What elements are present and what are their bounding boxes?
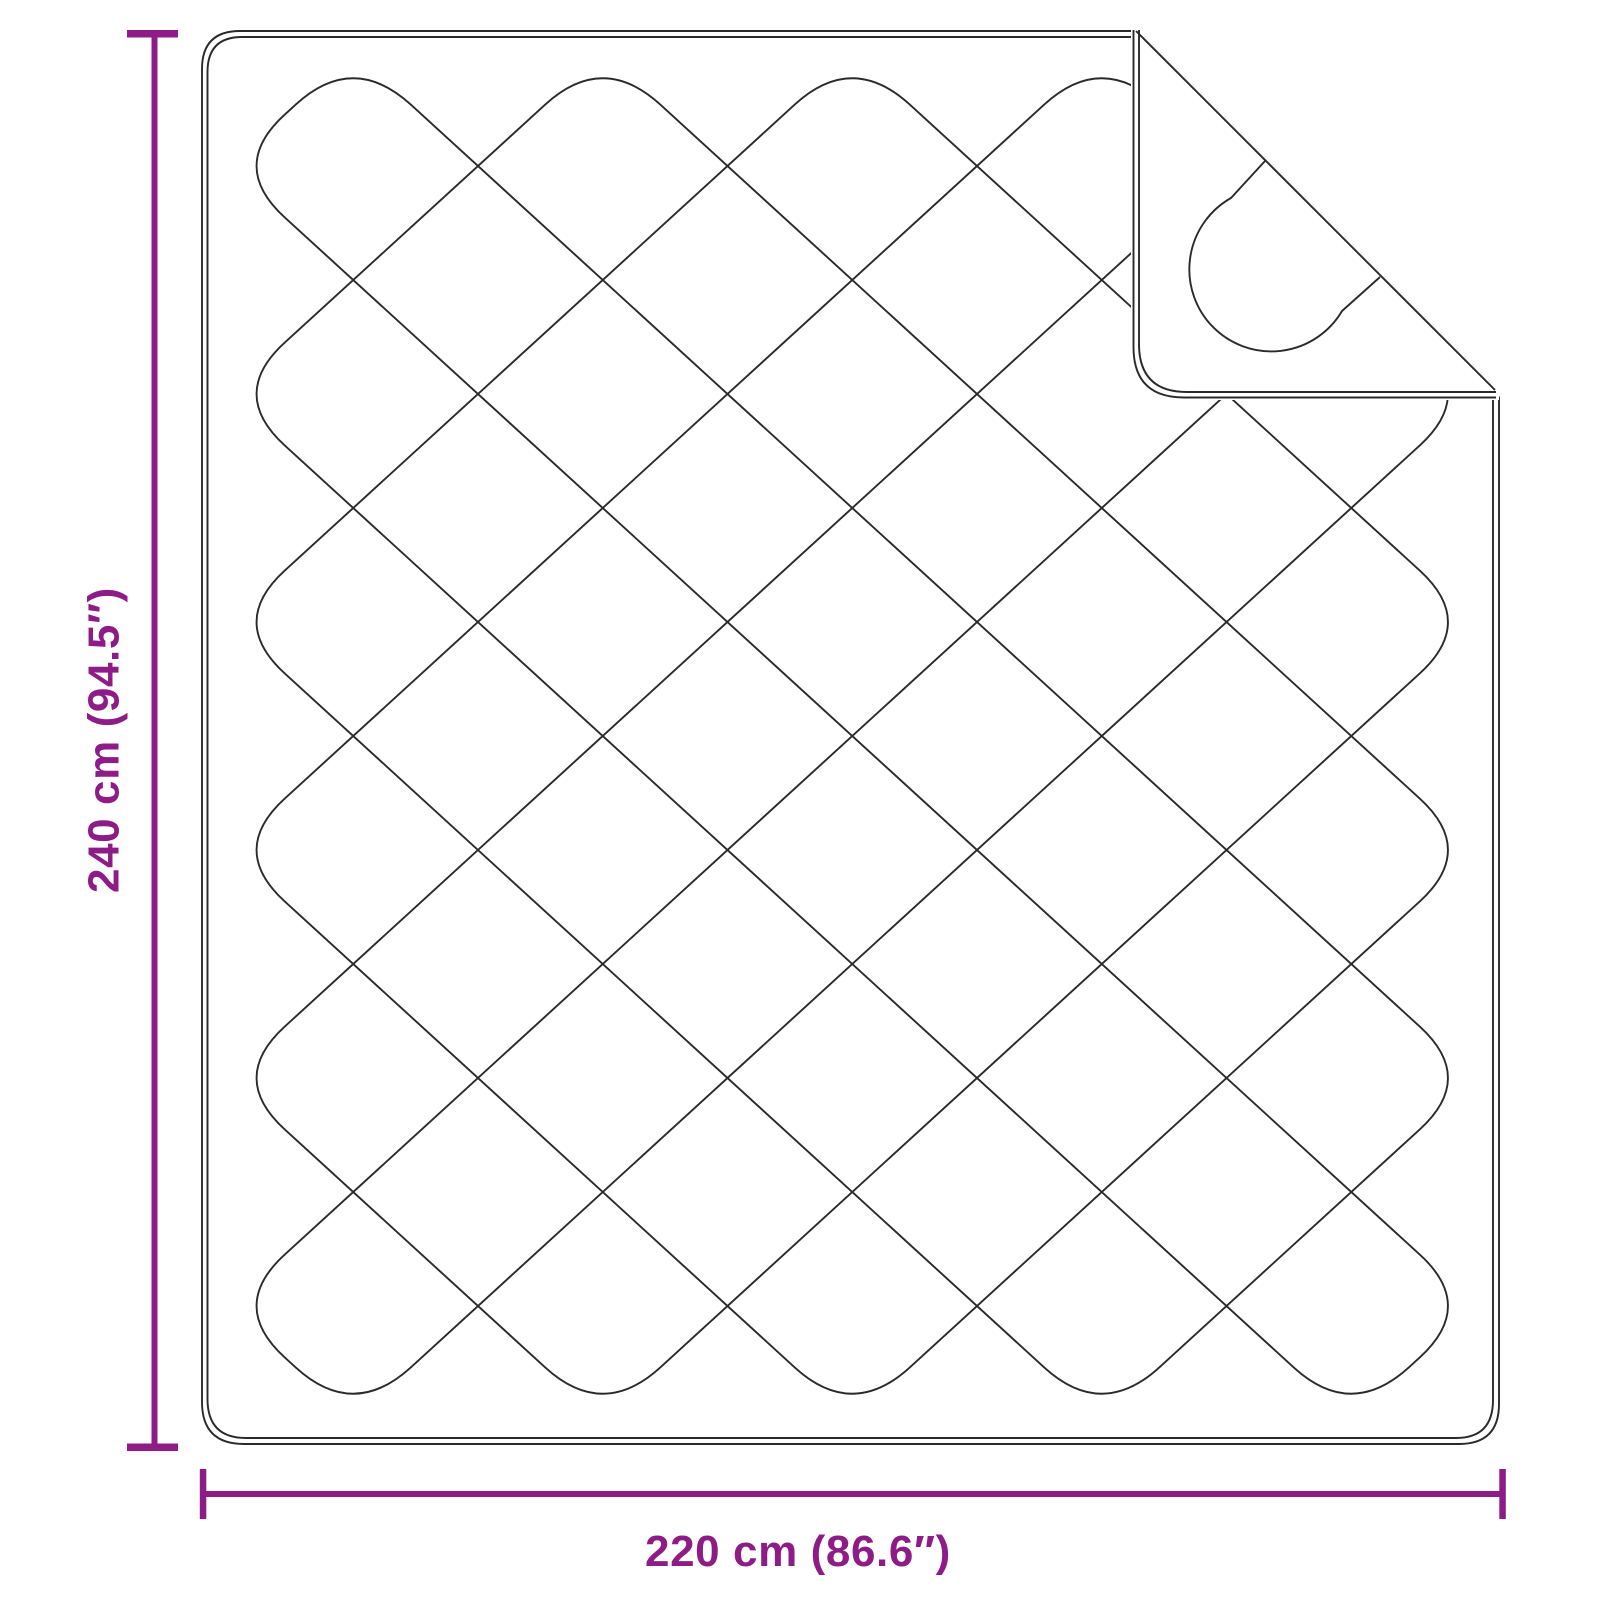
svg-text:240 cm (94.5″): 240 cm (94.5″)	[80, 587, 129, 893]
svg-text:220 cm (86.6″): 220 cm (86.6″)	[645, 1527, 951, 1576]
